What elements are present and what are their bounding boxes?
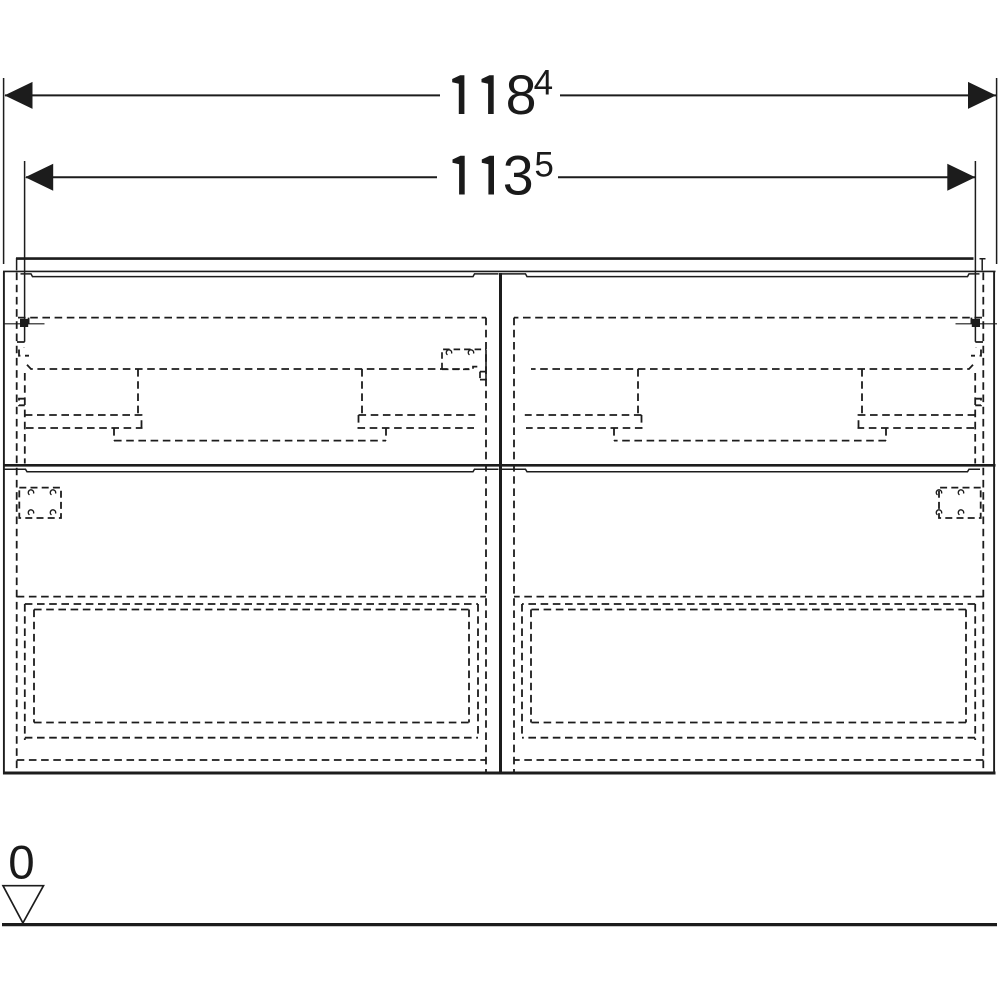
svg-text:3: 3 (503, 145, 534, 207)
svg-text:4: 4 (534, 64, 553, 103)
svg-text:8: 8 (506, 64, 537, 126)
svg-text:5: 5 (534, 145, 553, 184)
svg-text:0: 0 (8, 837, 34, 890)
